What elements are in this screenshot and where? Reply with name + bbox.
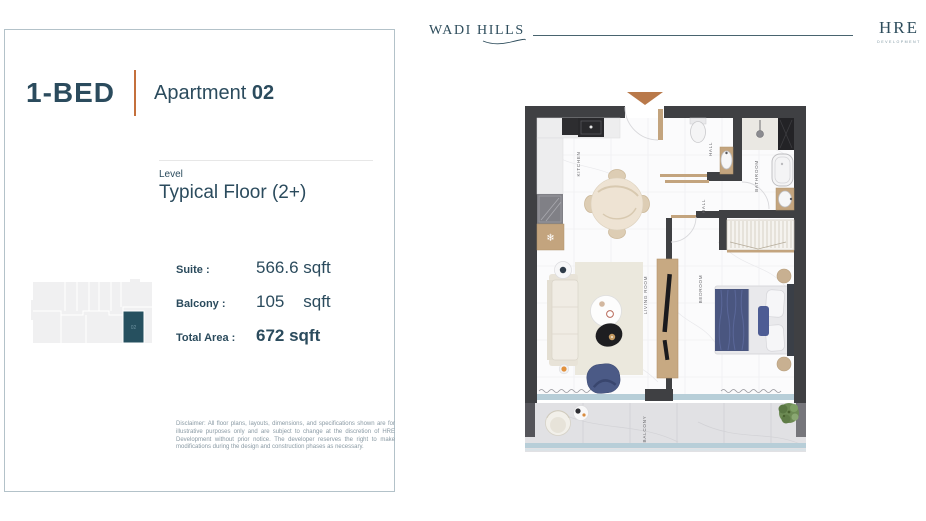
suite-area-row: Suite : 566.6 sqft [176,258,331,278]
bedroom-door-leaf [671,215,696,218]
floor-lamp-icon [561,366,566,371]
keyplan-unit-number: 02 [131,325,137,331]
apartment-label: Apartment [154,82,246,104]
suite-value: 566.6 sqft [256,258,331,278]
brochure-page: WADI HILLS HRE DEVELOPMENT 1-BED Apartme… [0,0,926,521]
nightstand [777,357,791,371]
developer-name: HRE [872,18,926,38]
shower-head-icon [757,131,764,138]
unit-type: 1-BED [26,77,115,109]
coffee-table [591,296,622,327]
entry-door-leaf [658,109,663,140]
kitchen-hob-icon [562,118,578,135]
brand-text: WADI HILLS [429,23,525,38]
balcony-area-row: Balcony : 105 sqft [176,292,331,312]
balcony-label: Balcony : [176,298,256,310]
tv-console [657,259,678,378]
entry-arrow-icon [627,92,663,105]
brand-swash-icon [481,38,527,46]
balcony-value: 105 sqft [256,292,331,312]
accent-pillow [758,306,769,336]
bathroom-sink-icon [779,191,792,207]
freezer-snowflake-icon: ❄ [546,233,554,244]
apartment-number: 02 [252,82,274,104]
developer-logo: HRE DEVELOPMENT [872,18,926,44]
area-summary: Suite : 566.6 sqft Balcony : 105 sqft To… [176,258,331,360]
disclaimer-text: Disclaimer: All floor plans, layouts, di… [176,421,395,452]
header-divider [533,35,853,36]
level-divider [159,160,373,161]
bathroom-label: BATHROOM [754,160,759,192]
headboard [787,284,794,356]
key-plan: 02 [31,278,156,346]
bedroom-label: BEDROOM [698,275,703,304]
unit-title-row: 1-BED Apartment 02 [26,70,274,116]
hall-upper-label: HALL [708,142,713,156]
wadi-hills-logo: WADI HILLS [429,23,525,39]
level-label: Level [159,169,183,180]
balcony-railing [525,443,806,448]
wardrobe [727,220,794,253]
hall-lower-label: HALL [701,199,706,213]
balcony-table [574,406,589,421]
unit-info-card: 1-BED Apartment 02 Level Typical Floor (… [4,29,395,492]
total-area-label: Total Area : [176,332,256,344]
developer-subtitle: DEVELOPMENT [872,40,926,44]
toilet-icon [691,122,706,143]
title-divider [134,70,136,116]
living-room-label: LIVING ROOM [643,276,648,314]
total-area-value: 672 sqft [256,326,320,346]
total-area-row: Total Area : 672 sqft [176,326,331,346]
balcony-label: BALCONY [642,416,647,443]
level-value: Typical Floor (2+) [159,182,306,204]
suite-label: Suite : [176,264,256,276]
apartment-title: Apartment 02 [154,82,274,105]
kitchen-label: KITCHEN [576,151,581,176]
sofa [552,280,578,360]
nightstand [777,269,791,283]
floor-plan: ❄ [518,92,818,457]
